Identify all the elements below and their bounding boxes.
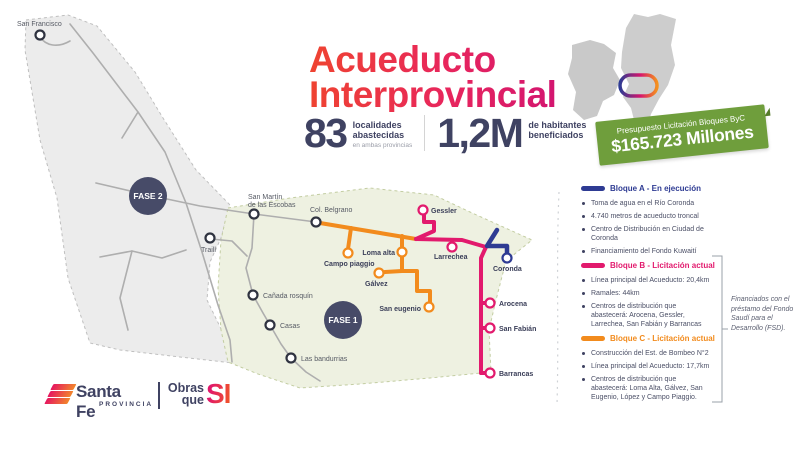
town-marker-loma-alta xyxy=(398,248,407,257)
financing-side-note: Financiados con el préstamo del Fondo Sa… xyxy=(731,295,795,333)
town-label-col-belgrano: Col. Belgrano xyxy=(310,207,353,214)
santafe-flag-icon xyxy=(45,398,71,404)
bloque-b-capsule-icon xyxy=(581,263,605,268)
stat-localities-label-l1: localidades xyxy=(353,120,413,130)
fase1-badge: FASE 1 xyxy=(324,301,362,339)
legend-bloque-b: Bloque B - Licitación actual Línea princ… xyxy=(581,261,721,333)
province-shape-left xyxy=(568,40,620,120)
legend-bloque-c: Bloque C - Licitación actual Construcció… xyxy=(581,334,721,406)
town-marker-gessler xyxy=(419,206,428,215)
town-label-san-martin-l1: San Martín xyxy=(248,194,282,201)
town-marker-coronda xyxy=(503,254,512,263)
stats-divider xyxy=(424,115,425,151)
legend-item: Ramales: 44km xyxy=(581,289,714,298)
bloque-a-capsule-icon xyxy=(581,186,605,191)
town-label-san-martin-l2: de las Escobas xyxy=(248,202,296,209)
bloque-c-header: Bloque C - Licitación actual xyxy=(581,334,721,343)
legend-item: Línea principal del Acueducto: 20,4km xyxy=(581,276,714,285)
infographic-canvas: San Francisco San Martín de las Escobas … xyxy=(0,0,800,450)
key-stats: 83 localidades abastecidas en ambas prov… xyxy=(304,113,586,153)
fase2-badge: FASE 2 xyxy=(129,177,167,215)
town-marker-san-francisco xyxy=(36,31,45,40)
bloque-c-title: Bloque C - Licitación actual xyxy=(610,334,715,343)
town-label-gessler: Gessler xyxy=(431,208,457,215)
page-title: Acueducto Interprovincial xyxy=(309,42,556,112)
town-label-galvez: Gálvez xyxy=(365,281,388,288)
slogan-text: Obras que xyxy=(166,383,204,406)
town-marker-campo-piaggio xyxy=(344,249,353,258)
bloque-b-title: Bloque B - Licitación actual xyxy=(610,261,715,270)
stat-inhabitants-label: de habitantes beneficiados xyxy=(528,120,586,140)
town-marker-galvez xyxy=(375,269,384,278)
bloque-b-list: Línea principal del Acueducto: 20,4km Ra… xyxy=(581,276,714,329)
town-label-loma-alta: Loma alta xyxy=(362,250,395,257)
legend-bloque-a: Bloque A - En ejecución Toma de agua en … xyxy=(581,184,721,259)
stat-localities-label-l2: abastecidas xyxy=(353,130,413,140)
town-marker-casas xyxy=(266,321,275,330)
town-label-canada-rosquin: Cañada rosquín xyxy=(263,293,313,300)
bloque-c-list: Construcción del Est. de Bombeo N°2 Líne… xyxy=(581,349,714,402)
town-label-larrechea: Larrechea xyxy=(434,254,468,261)
stat-inhabitants-label-l1: de habitantes xyxy=(528,120,586,130)
stat-localities-sublabel: en ambas provincias xyxy=(353,141,413,151)
fase1-badge-label: FASE 1 xyxy=(328,315,358,325)
town-label-las-bandurrias: Las bandurrias xyxy=(301,356,348,363)
bloque-c-capsule-icon xyxy=(581,336,605,341)
town-marker-larrechea xyxy=(448,243,457,252)
legend-item: Centros de distribución que abastecerá: … xyxy=(581,302,714,330)
town-marker-canada-rosquin xyxy=(249,291,258,300)
footer-divider xyxy=(158,382,160,409)
town-marker-col-belgrano xyxy=(312,218,321,227)
town-marker-arocena xyxy=(486,299,495,308)
santafe-flag-icon xyxy=(51,384,77,390)
slogan-line2: que xyxy=(182,393,204,407)
town-label-traill: Traill xyxy=(201,247,216,254)
legend-item: Toma de agua en el Río Coronda xyxy=(581,199,714,208)
stat-inhabitants-label-l2: beneficiados xyxy=(528,130,586,140)
town-marker-barrancas xyxy=(486,369,495,378)
legend-item: Construcción del Est. de Bombeo N°2 xyxy=(581,349,714,358)
bloque-a-title: Bloque A - En ejecución xyxy=(610,184,701,193)
legend-item: Centro de Distribución en Ciudad de Coro… xyxy=(581,225,714,243)
town-label-campo-piaggio: Campo piaggio xyxy=(324,261,375,268)
title-line1: Acueducto xyxy=(309,42,556,77)
bloque-b-header: Bloque B - Licitación actual xyxy=(581,261,721,270)
title-line2: Interprovincial xyxy=(309,77,556,112)
stat-localities-value: 83 xyxy=(304,113,347,153)
town-label-coronda: Coronda xyxy=(493,266,522,273)
town-label-san-eugenio: San eugenio xyxy=(379,306,421,313)
bloque-a-list: Toma de agua en el Río Coronda 4.740 met… xyxy=(581,199,714,256)
legend-item: Línea principal del Acueducto: 17,7km xyxy=(581,362,714,371)
town-label-san-francisco: San Francisco xyxy=(17,21,62,28)
river-dashed-line xyxy=(557,192,559,405)
town-marker-san-fabian xyxy=(486,324,495,333)
fase2-badge-label: FASE 2 xyxy=(133,191,163,201)
santafe-flag-icon xyxy=(48,391,74,397)
brand-subtitle: PROVINCIA xyxy=(99,401,153,408)
town-marker-las-bandurrias xyxy=(287,354,296,363)
bloque-a-header: Bloque A - En ejecución xyxy=(581,184,721,193)
town-marker-san-eugenio xyxy=(425,303,434,312)
town-label-arocena: Arocena xyxy=(499,301,527,308)
legend-item: 4.740 metros de acueducto troncal xyxy=(581,212,714,221)
town-label-casas: Casas xyxy=(280,323,300,330)
town-marker-san-martin xyxy=(250,210,259,219)
town-label-barrancas: Barrancas xyxy=(499,371,533,378)
fase1-region xyxy=(218,188,532,388)
legend-item: Financiamiento del Fondo Kuwaití xyxy=(581,247,714,256)
stat-localities-label: localidades abastecidas en ambas provinc… xyxy=(353,120,413,151)
fase2-region xyxy=(25,15,233,363)
town-label-san-fabian: San Fabián xyxy=(499,326,536,333)
town-marker-traill xyxy=(206,234,215,243)
legend-item: Centros de distribución que abastecerá: … xyxy=(581,375,714,403)
stat-inhabitants-value: 1,2M xyxy=(437,113,522,153)
slogan-accent: SI xyxy=(206,378,230,410)
